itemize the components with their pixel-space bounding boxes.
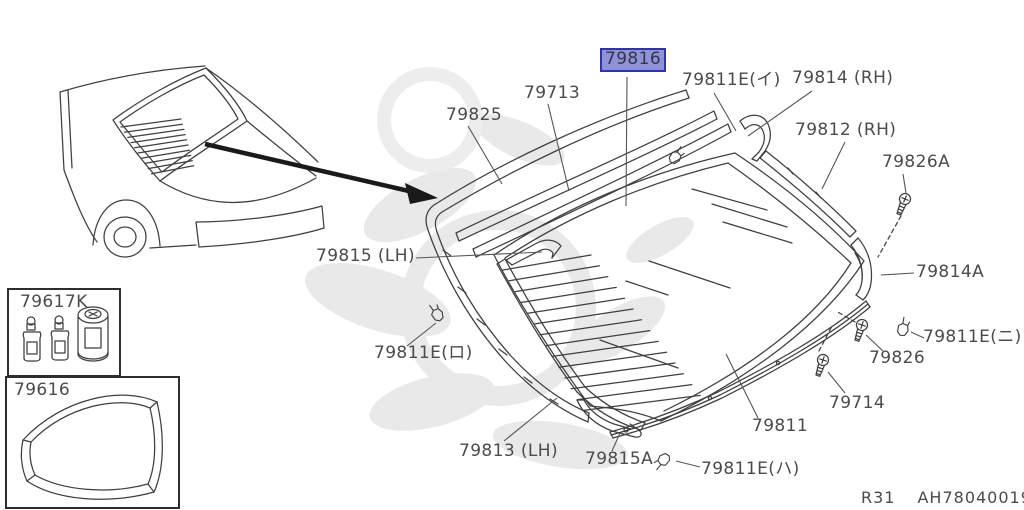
part-label-79617K[interactable]: 79617K xyxy=(20,293,88,313)
part-label-79826A[interactable]: 79826A xyxy=(882,153,950,173)
part-label-79714[interactable]: 79714 xyxy=(829,394,885,414)
catalog-code: AH78040019 xyxy=(917,488,1024,507)
sheet-ref: R31 xyxy=(861,488,895,507)
part-label-79826[interactable]: 79826 xyxy=(869,349,925,369)
part-label-79812RH[interactable]: 79812 (RH) xyxy=(795,121,896,141)
part-label-79811E[interactable]: 79811E(ロ) xyxy=(374,344,473,364)
part-label-79811E[interactable]: 79811E(イ) xyxy=(682,71,781,91)
part-label-79815LH[interactable]: 79815 (LH) xyxy=(316,247,415,267)
clip-icon xyxy=(654,453,671,470)
part-label-79815A[interactable]: 79815A xyxy=(585,450,653,470)
clip-icon xyxy=(893,316,914,337)
bottle-icon xyxy=(51,316,69,360)
clip-icon xyxy=(668,146,686,164)
part-label-79816[interactable]: 79816 xyxy=(602,50,664,70)
canister-icon xyxy=(78,307,108,361)
part-label-79811[interactable]: 79811 xyxy=(752,417,808,437)
screw-icon xyxy=(894,192,912,217)
part-label-79811E[interactable]: 79811E(ハ) xyxy=(701,460,800,480)
bottle-icon xyxy=(23,317,41,361)
screw-icon xyxy=(813,353,830,377)
part-label-79814RH[interactable]: 79814 (RH) xyxy=(792,69,893,89)
diagram-code: R31AH78040019 xyxy=(861,488,1024,507)
part-label-79713[interactable]: 79713 xyxy=(524,84,580,104)
part-label-79825[interactable]: 79825 xyxy=(446,106,502,126)
watermark-pattern xyxy=(296,74,700,477)
parts-diagram-page: 79825797137981679811E(イ)79814 (RH)79812 … xyxy=(0,0,1024,510)
part-label-79616[interactable]: 79616 xyxy=(14,381,70,401)
part-label-79814A[interactable]: 79814A xyxy=(916,263,984,283)
part-label-79811E[interactable]: 79811E(ニ) xyxy=(923,328,1022,348)
part-label-79813LH[interactable]: 79813 (LH) xyxy=(459,442,558,462)
